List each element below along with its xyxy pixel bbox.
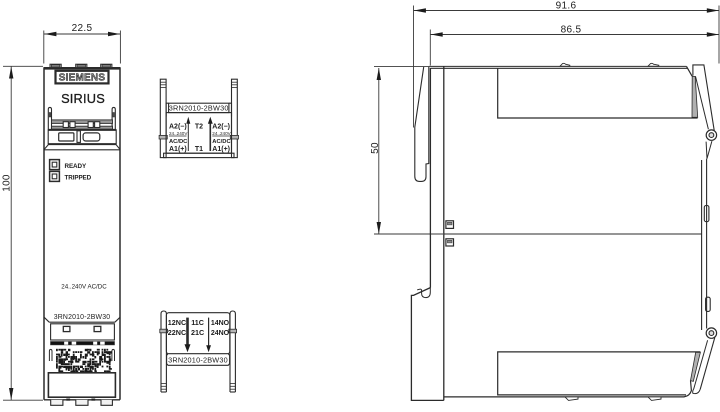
- svg-text:24..240V AC/DC: 24..240V AC/DC: [61, 283, 107, 290]
- svg-text:12NC: 12NC: [168, 318, 186, 327]
- svg-text:SIEMENS: SIEMENS: [59, 73, 106, 84]
- svg-text:22.5: 22.5: [72, 23, 93, 34]
- svg-text:TRIPPED: TRIPPED: [65, 175, 92, 182]
- svg-text:14NO: 14NO: [211, 320, 230, 327]
- svg-text:22NC: 22NC: [168, 328, 186, 337]
- svg-text:91.6: 91.6: [556, 1, 577, 12]
- svg-text:24..240V: 24..240V: [212, 131, 231, 136]
- svg-text:21C: 21C: [191, 328, 204, 337]
- svg-text:50: 50: [370, 142, 381, 154]
- svg-text:T1: T1: [195, 146, 203, 153]
- svg-text:AC/DC: AC/DC: [169, 139, 188, 145]
- svg-text:SIRIUS: SIRIUS: [61, 91, 105, 106]
- svg-text:A1(+): A1(+): [212, 146, 230, 153]
- svg-text:A1(+): A1(+): [169, 146, 187, 153]
- svg-text:24NO: 24NO: [211, 330, 230, 337]
- svg-text:86.5: 86.5: [561, 25, 582, 36]
- svg-text:A2(−): A2(−): [212, 124, 230, 131]
- svg-text:3RN2010-2BW30: 3RN2010-2BW30: [169, 104, 229, 113]
- svg-text:100: 100: [2, 174, 13, 192]
- svg-text:3RN2010-2BW30: 3RN2010-2BW30: [54, 314, 111, 321]
- svg-text:READY: READY: [65, 163, 87, 170]
- svg-text:3RN2010-2BW30: 3RN2010-2BW30: [168, 356, 228, 365]
- svg-text:11C: 11C: [191, 318, 204, 327]
- svg-text:AC/DC: AC/DC: [212, 139, 231, 145]
- svg-text:24..240V: 24..240V: [169, 131, 188, 136]
- svg-text:T2: T2: [195, 124, 203, 131]
- svg-text:A2(−): A2(−): [169, 124, 187, 131]
